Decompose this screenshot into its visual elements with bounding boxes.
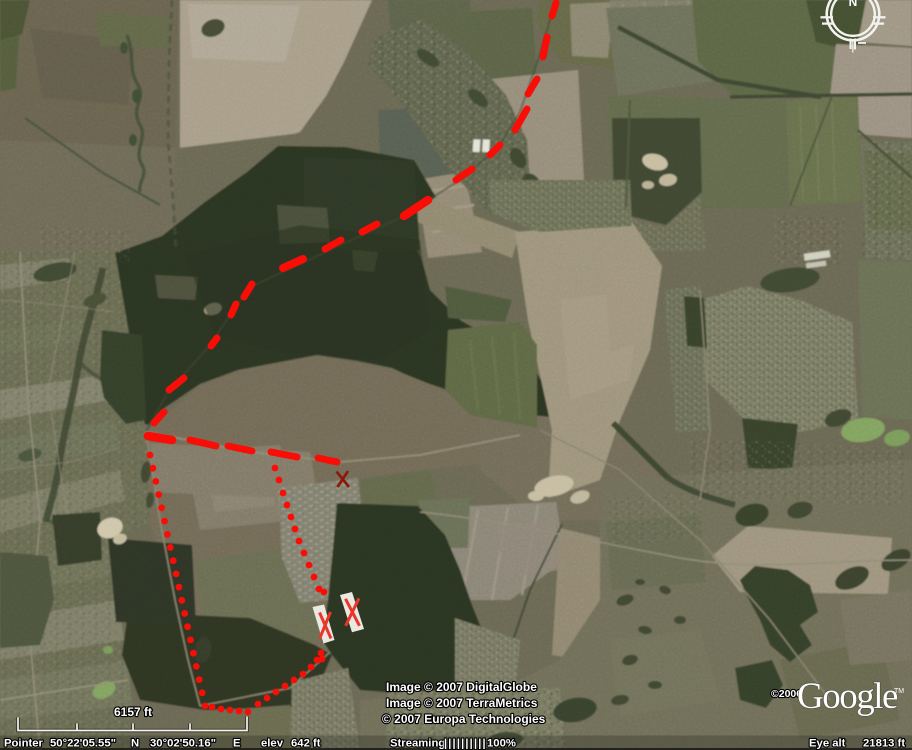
svg-text:Streaming: Streaming: [390, 738, 445, 750]
svg-text:elev: elev: [261, 738, 284, 750]
svg-text:100%: 100%: [487, 738, 516, 750]
svg-text:N: N: [131, 738, 139, 750]
svg-text:||||||||||: ||||||||||: [444, 738, 487, 750]
svg-text:Image © 2007 TerraMetrics: Image © 2007 TerraMetrics: [386, 696, 538, 710]
svg-text:642 ft: 642 ft: [291, 738, 321, 750]
svg-text:E: E: [233, 738, 241, 750]
svg-text:21813 ft: 21813 ft: [863, 738, 905, 750]
svg-text:30°02'50.16": 30°02'50.16": [150, 738, 216, 750]
svg-text:50°22'05.55": 50°22'05.55": [50, 738, 116, 750]
svg-text:TM: TM: [894, 688, 904, 695]
svg-text:© 2007 Europa Technologies: © 2007 Europa Technologies: [382, 712, 546, 726]
svg-text:Image © 2007 DigitalGlobe: Image © 2007 DigitalGlobe: [386, 680, 537, 694]
svg-text:Pointer: Pointer: [4, 738, 44, 750]
svg-text:6157 ft: 6157 ft: [114, 705, 152, 719]
svg-text:Eye alt: Eye alt: [809, 738, 846, 750]
svg-text:N: N: [849, 0, 858, 9]
svg-text:Google: Google: [797, 676, 898, 717]
